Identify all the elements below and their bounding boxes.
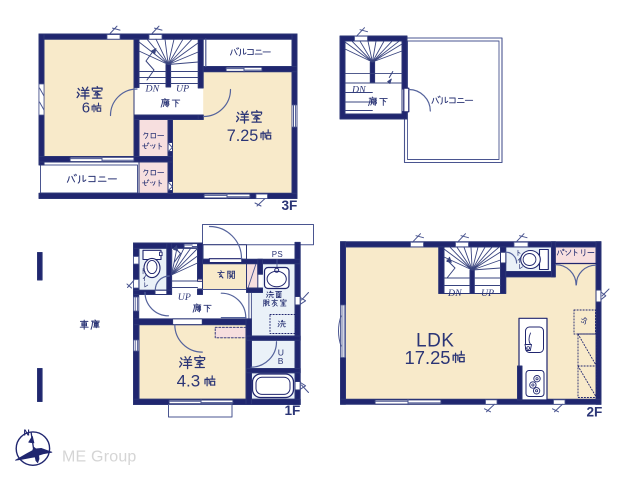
svg-text:B: B <box>278 356 284 366</box>
svg-text:ME Group: ME Group <box>62 449 137 466</box>
svg-text:DN: DN <box>145 84 160 95</box>
svg-text:1F: 1F <box>285 403 301 418</box>
svg-text:UP: UP <box>176 84 189 95</box>
svg-text:4.3: 4.3 <box>177 372 201 391</box>
svg-text:3F: 3F <box>282 198 298 213</box>
svg-text:PS: PS <box>272 250 283 259</box>
svg-text:17.25: 17.25 <box>405 347 451 368</box>
svg-text:UP: UP <box>178 292 191 303</box>
svg-text:6: 6 <box>82 100 90 117</box>
svg-text:2F: 2F <box>587 404 603 419</box>
svg-text:N: N <box>24 428 30 438</box>
svg-text:DN: DN <box>351 84 366 95</box>
svg-text:UP: UP <box>481 288 494 299</box>
svg-text:DN: DN <box>447 288 462 299</box>
svg-text:7.25: 7.25 <box>227 127 259 145</box>
